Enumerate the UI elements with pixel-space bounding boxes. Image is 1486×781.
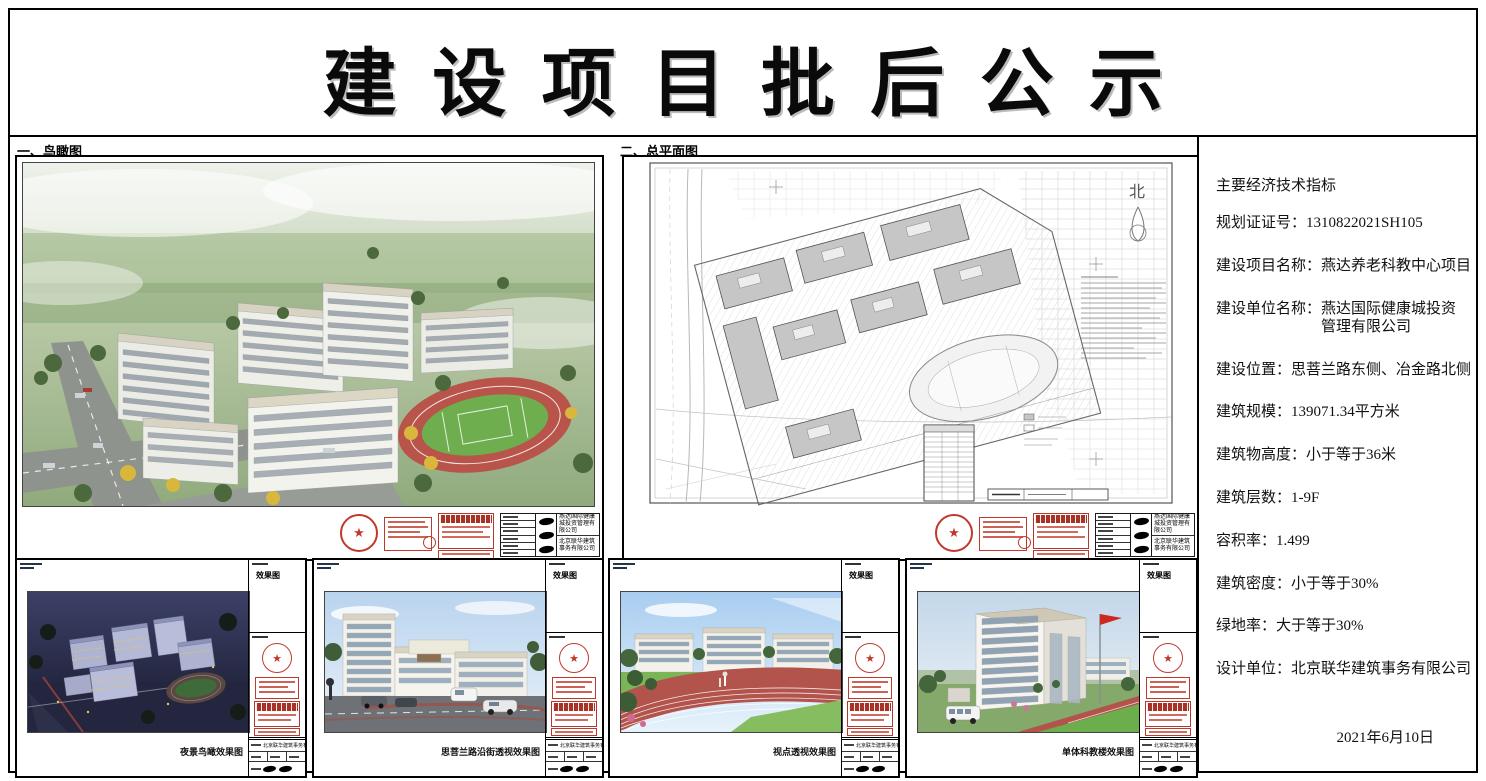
signature-blob xyxy=(538,516,554,525)
night-aerial-image xyxy=(27,591,250,733)
drawing-type-label: 效果图 xyxy=(849,570,873,581)
signature-blob xyxy=(576,765,590,773)
indicator-label: 建筑层数： xyxy=(1216,489,1291,507)
panel-caption: 单体科教楼效果图 xyxy=(1062,745,1134,758)
signature-table: 燕达国际健康城投资管理有限公司 北京联华建筑事务有限公司 xyxy=(500,513,600,557)
indicator-row: 建筑层数：1-9F xyxy=(1216,489,1470,507)
indicator-value: 1.499 xyxy=(1276,532,1470,550)
indicator-value: 思菩兰路东侧、冶金路北侧 xyxy=(1291,361,1471,379)
signature-blob xyxy=(1133,544,1149,553)
page-title: 建设项目批后公示 xyxy=(0,24,1486,131)
red-seal-icon xyxy=(1153,643,1183,673)
indicator-row: 规划证证号：1310822021SH105 xyxy=(1216,214,1470,232)
siteplan-scene: 北 xyxy=(626,159,1193,507)
indicator-row: 设计单位：北京联华建筑事务有限公司 xyxy=(1216,660,1470,678)
red-stamp-number xyxy=(847,728,893,736)
panel-caption: 视点透视效果图 xyxy=(773,745,836,758)
red-stamp-approval xyxy=(847,701,893,727)
red-seal-small-icon xyxy=(423,536,436,549)
aerial-rendering-scene xyxy=(23,163,594,506)
signature-blob xyxy=(538,530,554,539)
indicator-label: 建设项目名称： xyxy=(1216,257,1321,275)
red-seal-icon xyxy=(262,643,292,673)
design-company-name: 北京联华建筑事务有限公司 xyxy=(856,742,898,749)
indicator-label: 建筑物高度： xyxy=(1216,446,1306,464)
design-company-name: 北京联华建筑事务有限公司 xyxy=(263,742,305,749)
red-seal-small-icon xyxy=(1018,536,1031,549)
indicator-value: 1310822021SH105 xyxy=(1306,214,1470,232)
signature-blob xyxy=(1133,530,1149,539)
red-stamp-certificate xyxy=(552,677,596,699)
red-stamp-number xyxy=(254,728,300,736)
signature-mini-table: 北京联华建筑事务有限公司 xyxy=(1140,739,1196,776)
title-block-column: 效果图 北京联华建筑事务有限公司 xyxy=(1139,560,1196,776)
red-stamp-approval xyxy=(438,513,494,549)
red-stamp-certificate xyxy=(255,677,299,699)
indicator-row: 建筑规模：139071.34平方米 xyxy=(1216,403,1470,421)
red-stamp-certificate xyxy=(384,517,432,551)
panel-caption: 思菩兰路沿街透视效果图 xyxy=(441,745,540,758)
red-seal-icon xyxy=(855,643,885,673)
public-notice-sheet: 建设项目批后公示 一、鸟瞰图 二、总平面图 xyxy=(0,0,1486,781)
signature-blob xyxy=(1170,765,1184,773)
red-stamp-approval xyxy=(1145,701,1191,727)
red-seal-icon xyxy=(559,643,589,673)
indicator-value: 139071.34平方米 xyxy=(1291,403,1470,421)
signature-blob xyxy=(560,765,574,773)
indicator-label: 设计单位： xyxy=(1216,660,1291,678)
indicator-label: 规划证证号： xyxy=(1216,214,1306,232)
indicators-list: 规划证证号：1310822021SH105 建设项目名称：燕达养老科教中心项目 … xyxy=(1216,214,1470,703)
signature-blob xyxy=(1133,516,1149,525)
title-block-column: 效果图 北京联华建筑事务有限公司 xyxy=(841,560,898,776)
signature-mini-table: 北京联华建筑事务有限公司 xyxy=(249,739,305,776)
red-stamp-number xyxy=(1145,728,1191,736)
signature-blob xyxy=(538,544,554,553)
red-stamp-approval xyxy=(254,701,300,727)
indicator-value: 1-9F xyxy=(1291,489,1470,507)
indicator-label: 建设位置： xyxy=(1216,361,1291,379)
indicators-panel: 主要经济技术指标 规划证证号：1310822021SH105 建设项目名称：燕达… xyxy=(1199,136,1478,773)
indicator-value: 燕达养老科教中心项目 xyxy=(1321,257,1471,275)
indicator-label: 建筑密度： xyxy=(1216,575,1291,593)
signature-blob xyxy=(856,765,870,773)
siteplan-drawing: 北 xyxy=(626,159,1193,507)
indicator-value: 燕达国际健康城投资管理有限公司 xyxy=(1321,300,1470,337)
panel-caption: 夜景鸟瞰效果图 xyxy=(180,745,243,758)
panel-single-building: 单体科教楼效果图 效果图 北京联华建筑事务有限公司 xyxy=(905,558,1198,778)
red-stamp-number xyxy=(551,728,597,736)
indicator-row: 绿地率：大于等于30% xyxy=(1216,617,1470,635)
siteplan-stamp-strip: 燕达国际健康城投资管理有限公司 北京联华建筑事务有限公司 xyxy=(935,509,1193,557)
drawing-type-label: 效果图 xyxy=(553,570,577,581)
indicator-label: 建筑规模： xyxy=(1216,403,1291,421)
signature-blob xyxy=(1154,765,1168,773)
red-stamp-certificate xyxy=(979,517,1027,551)
design-company-name: 北京联华建筑事务有限公司 xyxy=(560,742,602,749)
signature-mini-table: 北京联华建筑事务有限公司 xyxy=(546,739,602,776)
title-block-column: 效果图 北京联华建筑事务有限公司 xyxy=(545,560,602,776)
design-company-name: 北京联华建筑事务有限公司 xyxy=(1154,742,1196,749)
indicator-value: 小于等于36米 xyxy=(1306,446,1470,464)
client-company-name: 燕达国际健康城投资管理有限公司 xyxy=(1152,514,1194,536)
title-block-column: 效果图 北京联华建筑事务有限公司 xyxy=(248,560,305,776)
track-view-image xyxy=(620,591,843,733)
red-stamp-approval xyxy=(551,701,597,727)
drawing-type-label: 效果图 xyxy=(256,570,280,581)
signature-table: 燕达国际健康城投资管理有限公司 北京联华建筑事务有限公司 xyxy=(1095,513,1195,557)
red-seal-icon xyxy=(340,514,378,552)
indicator-value: 北京联华建筑事务有限公司 xyxy=(1291,660,1471,678)
siteplan-sheet: 北 xyxy=(622,155,1199,561)
signature-blob xyxy=(279,765,293,773)
panel-night-aerial: 夜景鸟瞰效果图 效果图 北京联华建筑事务有限公司 xyxy=(15,558,307,778)
corner-note xyxy=(20,563,42,571)
indicator-row: 建设项目名称：燕达养老科教中心项目 xyxy=(1216,257,1470,275)
indicator-row: 建筑物高度：小于等于36米 xyxy=(1216,446,1470,464)
indicator-label: 绿地率： xyxy=(1216,617,1276,635)
aerial-sheet: 燕达国际健康城投资管理有限公司 北京联华建筑事务有限公司 xyxy=(15,155,604,561)
drawing-type-label: 效果图 xyxy=(1147,570,1171,581)
north-label: 北 xyxy=(1129,183,1145,201)
indicator-label: 容积率： xyxy=(1216,532,1276,550)
corner-note xyxy=(317,563,339,571)
corner-note xyxy=(910,563,932,571)
red-seal-icon xyxy=(935,514,973,552)
indicator-row: 建筑密度：小于等于30% xyxy=(1216,575,1470,593)
notice-date: 2021年6月10日 xyxy=(1336,726,1434,747)
indicator-row: 建设位置：思菩兰路东侧、冶金路北侧 xyxy=(1216,361,1470,379)
red-stamp-certificate xyxy=(1146,677,1190,699)
single-building-image xyxy=(917,591,1140,733)
aerial-stamp-strip: 燕达国际健康城投资管理有限公司 北京联华建筑事务有限公司 xyxy=(340,509,598,557)
design-company-name: 北京联华建筑事务有限公司 xyxy=(1152,536,1194,557)
panel-street-view: 思菩兰路沿街透视效果图 效果图 北京联华建筑事务有限公司 xyxy=(312,558,604,778)
signature-blob xyxy=(872,765,886,773)
street-view-image xyxy=(324,591,547,733)
panel-track-view: 视点透视效果图 效果图 北京联华建筑事务有限公司 xyxy=(608,558,900,778)
indicator-label: 建设单位名称： xyxy=(1216,300,1321,337)
indicator-value: 小于等于30% xyxy=(1291,575,1470,593)
client-company-name: 燕达国际健康城投资管理有限公司 xyxy=(557,514,599,536)
corner-note xyxy=(613,563,635,571)
design-company-name: 北京联华建筑事务有限公司 xyxy=(557,536,599,557)
red-stamp-approval xyxy=(1033,513,1089,549)
indicator-row: 容积率：1.499 xyxy=(1216,532,1470,550)
red-stamp-certificate xyxy=(848,677,892,699)
aerial-rendering-image xyxy=(22,162,595,507)
indicator-row: 建设单位名称：燕达国际健康城投资管理有限公司 xyxy=(1216,300,1470,337)
signature-mini-table: 北京联华建筑事务有限公司 xyxy=(842,739,898,776)
indicators-heading: 主要经济技术指标 xyxy=(1216,174,1336,195)
signature-blob xyxy=(263,765,277,773)
indicator-value: 大于等于30% xyxy=(1276,617,1470,635)
